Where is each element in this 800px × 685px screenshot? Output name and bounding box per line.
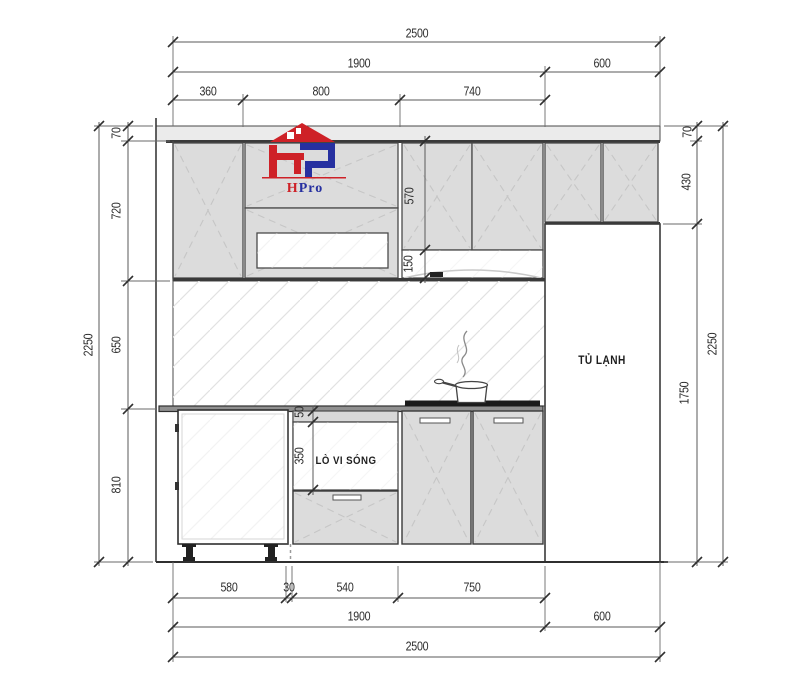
wall-cabinet-360: [173, 143, 243, 278]
drawer-handle: [333, 495, 361, 500]
door-handle: [494, 418, 523, 423]
dim-right-70: 70: [680, 126, 695, 137]
dim-left-650: 650: [109, 336, 124, 353]
microwave-label: LÒ VI SÓNG: [316, 455, 377, 467]
dim-top-fridge: 600: [593, 56, 610, 71]
base-cabinet-580: [175, 410, 288, 544]
range-hood-niche: [402, 250, 543, 278]
dim-top-740: 740: [463, 84, 480, 99]
dim-bottom-540: 540: [336, 580, 353, 595]
backsplash: [173, 281, 545, 406]
door-handle: [420, 418, 450, 423]
dim-top-run: 1900: [348, 56, 371, 71]
dim-bottom-580: 580: [220, 580, 237, 595]
dim-internal-150: 150: [401, 255, 416, 272]
fridge-space: [545, 224, 660, 562]
dim-internal-570: 570: [402, 187, 417, 204]
hpro-wordmark-pro: Pro: [299, 181, 324, 196]
cornice-strip: [156, 126, 660, 142]
kitchen-elevation-drawing: 2500 1900 600 360 800 740 580 30 540 750…: [0, 0, 800, 685]
dim-right-1750: 1750: [677, 382, 692, 405]
dim-bottom-600: 600: [593, 609, 610, 624]
dim-top-360: 360: [199, 84, 216, 99]
hpro-wordmark: HPro: [287, 181, 323, 197]
dim-bottom-2500: 2500: [406, 639, 429, 654]
fridge-label: TỦ LẠNH: [578, 355, 625, 367]
dim-left-2250: 2250: [81, 334, 96, 357]
dim-right-430: 430: [679, 173, 694, 190]
dim-top-800: 800: [312, 84, 329, 99]
wall-cabinet-600-over-fridge: [545, 143, 658, 222]
hood-control: [430, 272, 443, 277]
dim-internal-50: 50: [292, 406, 307, 417]
hpro-wordmark-h: H: [287, 181, 299, 196]
dim-bottom-1900: 1900: [348, 609, 371, 624]
dim-left-70: 70: [109, 127, 124, 138]
cabinet-feet: [182, 544, 278, 562]
base-cabinet-750: [402, 411, 543, 544]
base-cabinet-540-microwave: [293, 411, 398, 544]
dim-right-2250: 2250: [705, 333, 720, 356]
wall-cabinet-740: [402, 143, 543, 250]
dim-left-810: 810: [109, 476, 124, 493]
dim-left-720: 720: [109, 202, 124, 219]
dim-bottom-750: 750: [463, 580, 480, 595]
dim-bottom-30: 30: [283, 580, 294, 595]
dim-internal-350: 350: [292, 447, 307, 464]
dim-top-overall: 2500: [406, 26, 429, 41]
